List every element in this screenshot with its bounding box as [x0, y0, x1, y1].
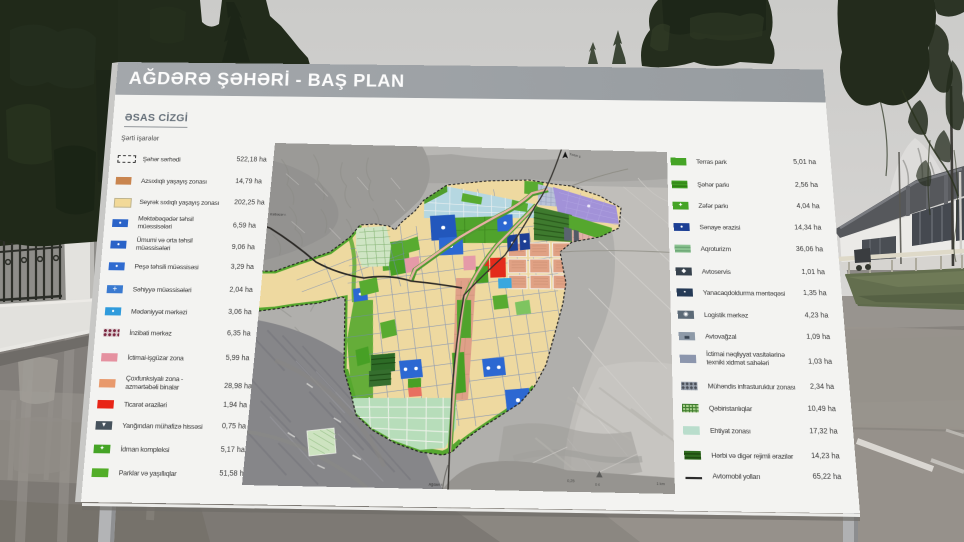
svg-text:Kəlbəcər r.: Kəlbəcər r. [270, 212, 287, 216]
svg-text:0,25: 0,25 [567, 479, 575, 484]
svg-text:0 4: 0 4 [595, 482, 600, 487]
svg-text:Ağdam r.: Ağdam r. [429, 482, 444, 487]
svg-text:1 km: 1 km [656, 482, 665, 487]
